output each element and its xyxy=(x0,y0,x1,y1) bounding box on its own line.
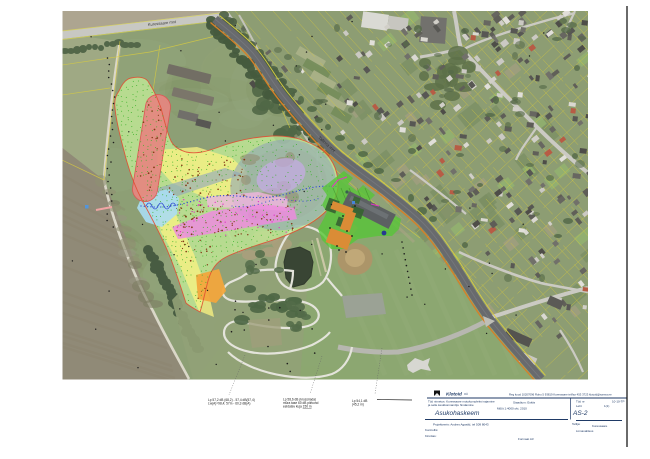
svg-text:Klotoid: Klotoid xyxy=(446,392,462,397)
svg-text:Lw(A)=98,4; 57m - 60,3 dB(A): Lw(A)=98,4; 57m - 60,3 dB(A) xyxy=(208,402,250,406)
svg-text:Projekteeris: Andres Agasild,: Projekteeris: Andres Agasild, tel 509 80… xyxy=(433,423,489,427)
svg-text:Kinnitas:: Kinnitas: xyxy=(425,434,437,438)
svg-text:Mõõt 1:4000 okt. 2010: Mõõt 1:4000 okt. 2010 xyxy=(497,407,527,411)
svg-text:Formaat A3: Formaat A3 xyxy=(518,437,534,441)
svg-text:Töö nr: Töö nr xyxy=(576,400,585,404)
svg-text:Tellija:: Tellija: xyxy=(572,422,581,426)
svg-text:Reg kood 10207096 Rohu 5 9381: Reg kood 10207096 Rohu 5 93819 Kuressaar… xyxy=(509,393,612,397)
svg-text:Leht: Leht xyxy=(576,404,582,408)
svg-text:Kuressaare: Kuressaare xyxy=(592,424,608,428)
svg-text:ja selle keskkonnamõju hindami: ja selle keskkonnamõju hindamine xyxy=(427,403,474,407)
svg-text:1(1): 1(1) xyxy=(604,404,609,408)
svg-text:eeldatav kuja 150 m: eeldatav kuja 150 m xyxy=(283,405,312,409)
svg-text:Asukohaskeem: Asukohaskeem xyxy=(434,410,480,417)
svg-text:Linnavalitsus: Linnavalitsus xyxy=(576,429,594,433)
svg-text:(45,2 m): (45,2 m) xyxy=(352,403,364,407)
svg-text:10-10-TP: 10-10-TP xyxy=(612,400,625,404)
svg-text:Kontrollis:: Kontrollis: xyxy=(425,428,438,432)
svg-text:Staadium: Eskiis: Staadium: Eskiis xyxy=(513,401,536,405)
svg-text:AS-2: AS-2 xyxy=(572,410,588,417)
svg-text:OÜ: OÜ xyxy=(464,392,468,396)
